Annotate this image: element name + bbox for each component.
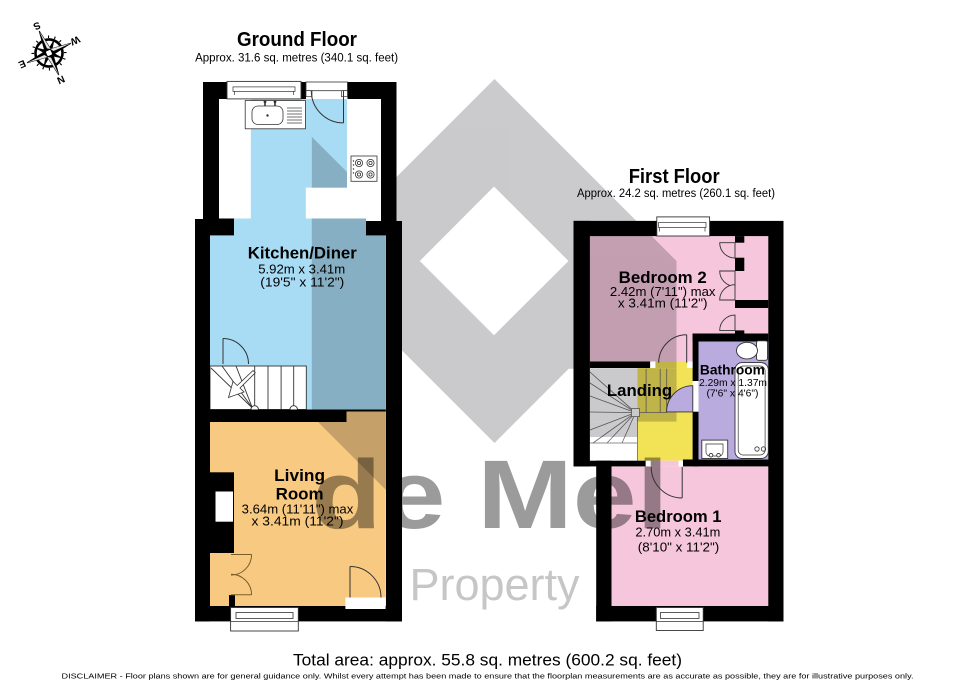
svg-text:Approx. 24.2 sq. metres (260.1: Approx. 24.2 sq. metres (260.1 sq. feet) xyxy=(577,188,775,200)
svg-text:x 3.41m (11'2"): x 3.41m (11'2") xyxy=(252,513,344,528)
svg-text:x 3.41m (11'2"): x 3.41m (11'2") xyxy=(618,296,708,311)
svg-text:(19'5" x 11'2"): (19'5" x 11'2") xyxy=(260,274,344,289)
svg-text:Kitchen/Diner: Kitchen/Diner xyxy=(248,244,357,263)
svg-text:DISCLAIMER - Floor plans sho: DISCLAIMER - Floor plans shown are for g… xyxy=(62,674,914,681)
svg-text:(7'6" x 4'6"): (7'6" x 4'6") xyxy=(707,389,759,400)
svg-text:Approx. 31.6 sq. metres (340.1: Approx. 31.6 sq. metres (340.1 sq. feet) xyxy=(195,53,398,65)
svg-text:2.29m x 1.37m: 2.29m x 1.37m xyxy=(699,378,767,389)
svg-text:Bathroom: Bathroom xyxy=(700,363,765,378)
svg-text:Landing: Landing xyxy=(607,381,672,400)
svg-text:de Mel: de Mel xyxy=(312,440,669,549)
svg-text:Ground Floor: Ground Floor xyxy=(237,29,357,51)
svg-text:Property: Property xyxy=(409,559,580,610)
svg-text:(8'10" x 11'2"): (8'10" x 11'2") xyxy=(638,540,719,555)
svg-text:Living: Living xyxy=(274,466,325,485)
svg-text:Bedroom 1: Bedroom 1 xyxy=(635,507,722,526)
svg-text:Total area: approx. 55.8 sq. m: Total area: approx. 55.8 sq. metres (600… xyxy=(293,651,682,670)
svg-text:First Floor: First Floor xyxy=(629,166,720,188)
svg-text:2.70m x 3.41m: 2.70m x 3.41m xyxy=(635,525,720,540)
